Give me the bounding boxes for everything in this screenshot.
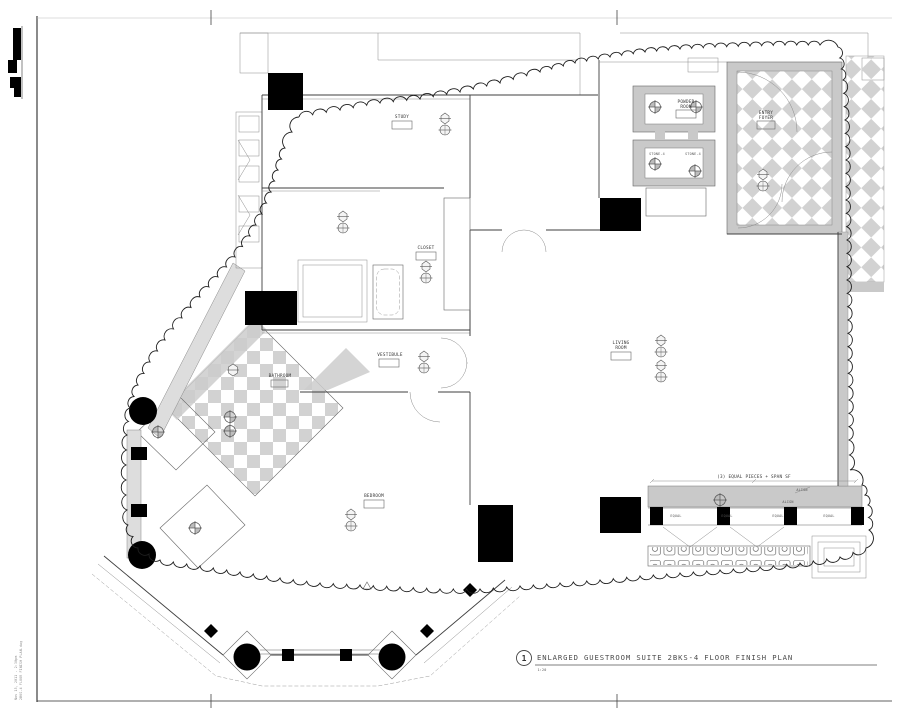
plot-stamp: Nov 15, 2011 - 2:30pm 2BKS-4 FLOOR FINIS… [14,641,23,700]
detail-title: ENLARGED GUESTROOM SUITE 2BKS-4 FLOOR FI… [537,653,793,662]
note-equal-3: EQUAL [772,514,783,518]
label-stone-b: STONE-4 [685,152,701,156]
note-equal-4: EQUAL [823,514,834,518]
tag-bedroom [364,500,384,508]
stone-room-floor [633,131,715,186]
note-equal-2: EQUAL [721,514,732,518]
floor-finishes [127,56,884,568]
plot-stamp-line1: Nov 15, 2011 - 2:30pm [14,656,18,701]
entry-foyer-floor [727,62,842,234]
note-pieces: (3) EQUAL PIECES + SPAN SF [717,474,791,480]
detail-number: 1 [522,654,527,663]
label-study: STUDY [395,114,409,120]
wet-room-b [160,485,245,568]
label-stone-a: STONE-4 [649,152,665,156]
label-bedroom: BEDROOM [364,493,384,499]
east-wall-band [838,232,848,486]
note-align-2: ALIGN [782,500,793,504]
floor-plan-canvas: Nov 15, 2011 - 2:30pm 2BKS-4 FLOOR FINIS… [0,0,900,709]
plot-stamp-line2: 2BKS-4 FLOOR FINISH PLAN.dwg [19,641,23,700]
dresser-inner [303,265,362,317]
closet-hangers [444,198,470,310]
title-block: 1 ENLARGED GUESTROOM SUITE 2BKS-4 FLOOR … [517,651,878,673]
tag-living [611,352,631,360]
window-pier-strip [236,112,262,268]
bathroom-floor [160,315,352,505]
tag-study [392,121,412,129]
label-living-2: ROOM [615,345,627,351]
revision-triangle [363,582,371,589]
balustrade-posts [650,547,808,565]
corridor-floor [846,56,884,282]
detail-scale: 1:20 [538,668,547,672]
terrace-band [648,486,862,507]
powder-room-floor [633,86,715,132]
tag-closet [416,252,436,260]
note-equal-1: EQUAL [670,514,681,518]
bay-posts [204,583,477,638]
dresser [298,260,367,322]
label-entry-2: FOYER [759,115,773,121]
terrace-corner-steps [812,536,866,578]
bathtub [373,265,403,319]
label-vestibule: VESTIBULE [377,352,403,358]
scale-bar [8,26,22,99]
bath-threshold [304,348,370,390]
label-bathroom: BATHROOM [269,373,292,379]
entry-closet [646,188,706,216]
label-closet: CLOSET [417,245,434,251]
label-powder-2: ROOM [680,104,692,110]
drawing-sheet: Nov 15, 2011 - 2:30pm 2BKS-4 FLOOR FINIS… [0,0,900,709]
tag-vestibule [379,359,399,367]
